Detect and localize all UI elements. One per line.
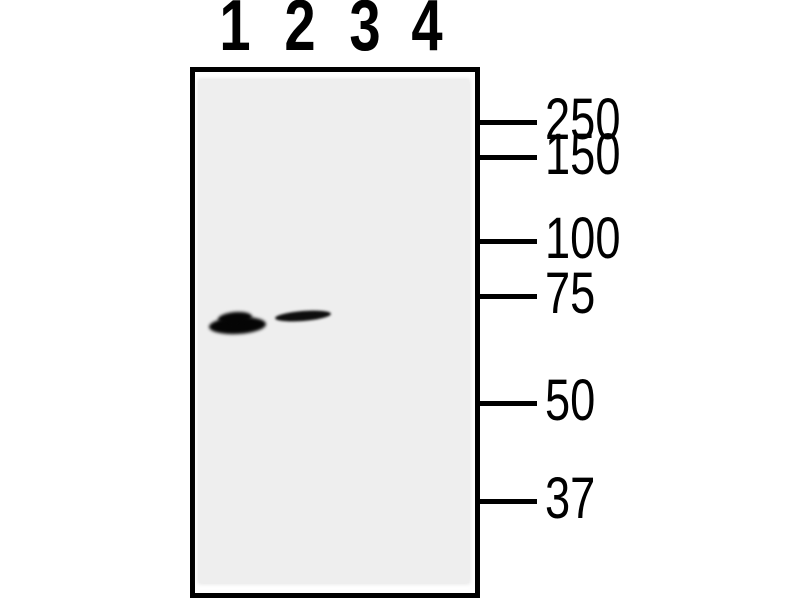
mw-label-50: 50 [545, 372, 610, 430]
mw-tick-75 [477, 294, 537, 299]
mw-label-text: 75 [545, 265, 595, 323]
lane-label-1: 1 [205, 0, 265, 62]
lane-label-text: 2 [284, 0, 315, 62]
lane-label-2: 2 [270, 0, 330, 62]
lane-label-text: 1 [219, 0, 250, 62]
lane-label-text: 4 [411, 0, 442, 62]
mw-label-text: 37 [545, 470, 595, 528]
mw-label-150: 150 [545, 126, 642, 184]
lane-label-4: 4 [397, 0, 457, 62]
mw-label-text: 100 [545, 210, 620, 268]
lane-label-3: 3 [335, 0, 395, 62]
mw-tick-150 [477, 155, 537, 160]
mw-tick-37 [477, 499, 537, 504]
lane-label-text: 3 [349, 0, 380, 62]
mw-tick-50 [477, 401, 537, 406]
mw-label-text: 50 [545, 372, 595, 430]
mw-label-text: 150 [545, 126, 620, 184]
mw-tick-100 [477, 239, 537, 244]
western-blot-figure: 1234 250150100755037 [0, 0, 800, 600]
mw-label-75: 75 [545, 265, 610, 323]
mw-tick-250 [477, 120, 537, 125]
mw-label-37: 37 [545, 470, 610, 528]
mw-label-100: 100 [545, 210, 642, 268]
